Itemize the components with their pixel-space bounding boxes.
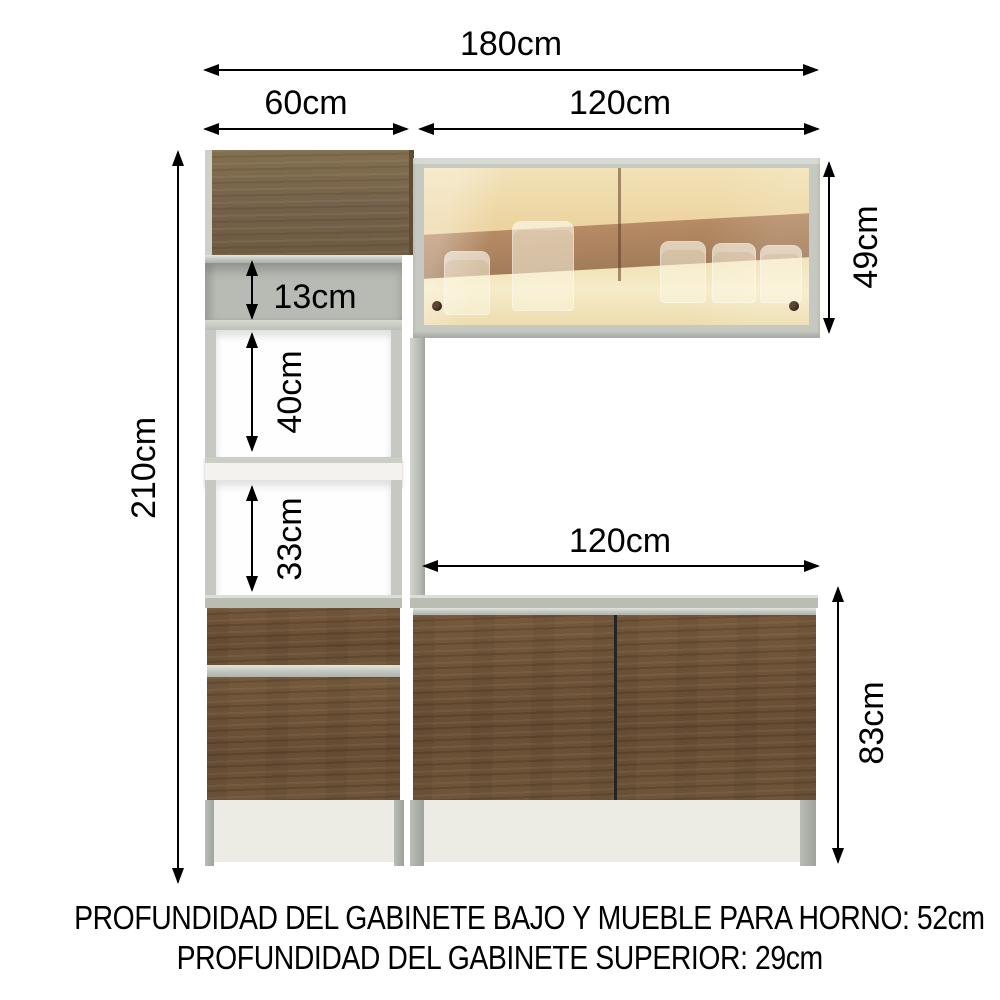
- side-post: [410, 338, 425, 596]
- kitchen-dimension-diagram: 180cm 60cm 120cm 49cm 13cm 40cm 33cm 210…: [0, 0, 1000, 1000]
- door-knob: [432, 301, 442, 311]
- glass-doors-panel: [424, 168, 809, 325]
- dim-base-height-arrow: [837, 588, 839, 862]
- plinth: [424, 800, 800, 862]
- dim-counter-width-arrow: [424, 565, 818, 567]
- dim-niche-middle-label: 40cm: [273, 350, 307, 433]
- dim-counter-width-label: 120cm: [569, 524, 671, 558]
- shelf: [205, 320, 402, 330]
- dim-total-height-arrow: [177, 152, 179, 882]
- glass-door-divider: [618, 168, 621, 281]
- footer-note-2-text: PROFUNDIDAD DEL GABINETE SUPERIOR: 29cm: [177, 941, 823, 974]
- base-door-right: [617, 615, 816, 800]
- upper-wall-cabinet: [413, 158, 820, 338]
- tower-counter-edge: [205, 595, 402, 608]
- dim-niche-bottom-arrow: [251, 487, 253, 590]
- plinth-leg: [394, 800, 404, 866]
- footer-note-2: PROFUNDIDAD DEL GABINETE SUPERIOR: 29cm: [0, 941, 1000, 974]
- base-cabinet: [410, 595, 818, 868]
- dim-niche-middle-arrow: [251, 334, 253, 450]
- dim-niche-top-arrow: [251, 262, 253, 318]
- base-countertop: [410, 595, 818, 608]
- dim-niche-top-label: 13cm: [273, 280, 356, 314]
- dim-upper-width-arrow: [420, 128, 818, 130]
- dim-upper-height-arrow: [828, 163, 830, 332]
- plinth-leg: [205, 800, 214, 866]
- base-doors-handle: [413, 608, 816, 615]
- drawer-handle: [207, 665, 400, 677]
- oven-door-handle: [205, 255, 402, 263]
- plinth: [214, 800, 394, 862]
- dim-tower-width-label: 60cm: [264, 86, 347, 120]
- tower-lower-door: [207, 677, 400, 800]
- glass-sheen: [424, 168, 809, 325]
- dim-upper-width-label: 120cm: [569, 86, 671, 120]
- tower-drawer-front: [207, 608, 400, 665]
- dim-upper-height-label: 49cm: [849, 205, 883, 288]
- dim-total-height-label: 210cm: [127, 417, 161, 519]
- dim-total-width-label: 180cm: [460, 27, 562, 61]
- door-knob: [789, 301, 799, 311]
- oven-cabinet-door: [205, 150, 414, 255]
- dim-niche-bottom-label: 33cm: [273, 497, 307, 580]
- footer-note-1: PROFUNDIDAD DEL GABINETE BAJO Y MUEBLE P…: [0, 901, 1000, 934]
- dim-tower-width-arrow: [205, 128, 407, 130]
- dim-total-width-arrow: [205, 69, 817, 71]
- dim-base-height-label: 83cm: [855, 681, 889, 764]
- plinth-leg: [410, 800, 424, 866]
- footer-note-1-text: PROFUNDIDAD DEL GABINETE BAJO Y MUEBLE P…: [74, 901, 984, 934]
- base-door-left: [413, 615, 614, 800]
- plinth-leg: [800, 800, 816, 866]
